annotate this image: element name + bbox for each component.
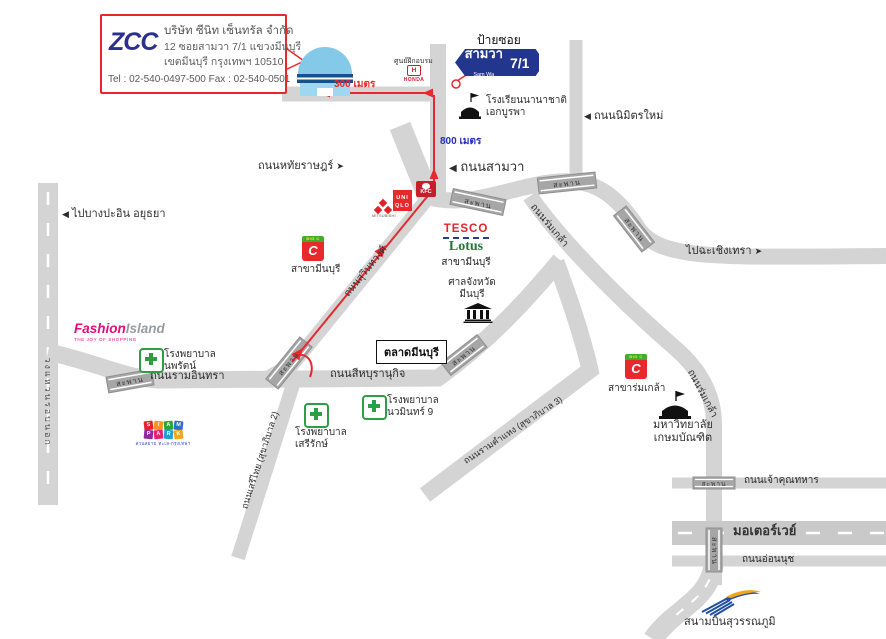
- label-motorway: มอเตอร์เวย์: [728, 524, 801, 539]
- soi-sign-caption: ป้ายซอย: [477, 34, 521, 48]
- hospital-line1: โรงพยาบาล: [295, 427, 347, 439]
- hathairat-text: ถนนหทัยราษฎร์: [258, 160, 333, 172]
- label-to-bangpain: ◀ ไปบางปะอิน อยุธยา: [62, 208, 166, 221]
- uniqlo-icon: UNI QLO: [393, 190, 412, 211]
- hospital-line1: โรงพยาบาล: [387, 395, 439, 407]
- hospital-serirak-label: โรงพยาบาล เสรีรักษ์: [295, 427, 347, 450]
- zcc-logo: ZCC: [109, 28, 157, 57]
- nimitmai-text: ถนนนิมิตรใหม่: [594, 110, 663, 122]
- arrow-left-icon: ◀: [584, 111, 591, 121]
- label-hathairat: ถนนหทัยราษฎร์ ➤: [258, 160, 344, 173]
- label-samwa-road: ◀ ถนนสามวา: [449, 160, 524, 175]
- island-text: Island: [126, 321, 165, 336]
- university-line1: มหาวิทยาลัย: [640, 419, 726, 432]
- kfc-text: KFC: [416, 189, 436, 195]
- bigc-letter: C: [625, 360, 647, 379]
- honda-logo-text: HONDA: [401, 77, 427, 83]
- hospital-line2: นวมินทร์ 9: [387, 407, 439, 419]
- lotus-logo-text: Lotus: [436, 240, 496, 254]
- company-info-box: ZCC บริษัท ซีนิท เซ็นทรัล จำกัด 12 ซอยสา…: [100, 14, 287, 94]
- route-arrowheads: [292, 89, 439, 361]
- bigc-letter: C: [302, 242, 324, 261]
- chachoengsao-text: ไปฉะเชิงเทรา: [686, 245, 752, 257]
- hospital-nopparat-label: โรงพยาบาล นพรัตน์: [164, 349, 216, 372]
- honda-h-icon: H: [407, 65, 421, 76]
- university-label: มหาวิทยาลัย เกษมบัณฑิต: [640, 419, 726, 444]
- siam-park-block: K: [173, 430, 183, 440]
- uniqlo-line2: QLO: [393, 202, 412, 210]
- hospital-cross-icon: [304, 403, 329, 428]
- label-onnut: ถนนอ่อนนุช: [742, 554, 794, 566]
- road-network: [0, 0, 886, 639]
- minburi-market-box: ตลาดมีนบุรี: [376, 340, 447, 364]
- siam-park-block: A: [153, 430, 163, 440]
- court-icon: [463, 303, 493, 323]
- school-icon: [459, 93, 481, 119]
- siam-park-block: P: [143, 430, 153, 440]
- distance-300m: 300 เมตร: [334, 79, 375, 91]
- court-line1: ศาลจังหวัด: [442, 277, 502, 289]
- school-label: โรงเรียนนานาชาติ เอกบูรพา: [486, 95, 567, 118]
- label-nimitmai: ◀ ถนนนิมิตรใหม่: [584, 110, 663, 123]
- soi-sign: สามวา Sam Wa 7/1: [455, 49, 539, 76]
- siam-park-logo: S I A M P A R K สวนสยาม ทะเล-กรุงเทพฯ: [124, 421, 202, 447]
- airport-logo-icon: [698, 586, 762, 616]
- kfc-icon: KFC: [416, 181, 436, 197]
- hospital-line2: นพรัตน์: [164, 361, 216, 373]
- road-serithai: [238, 372, 297, 558]
- hospital-navamin-label: โรงพยาบาล นวมินทร์ 9: [387, 395, 439, 418]
- hospital-line1: โรงพยาบาล: [164, 349, 216, 361]
- school-line1: โรงเรียนนานาชาติ: [486, 95, 567, 107]
- university-line2: เกษมบัณฑิต: [640, 432, 726, 445]
- bigc-romklao-branch: สาขาร่มเกล้า: [608, 383, 665, 395]
- hospital-cross-icon: [362, 395, 387, 420]
- mitsubishi-text: MITSUBISHI: [372, 214, 394, 218]
- location-marker: [452, 80, 460, 88]
- fashion-text: Fashion: [74, 321, 126, 336]
- soi-sign-number: 7/1: [510, 55, 529, 71]
- distance-800m: 800 เมตร: [440, 136, 481, 148]
- arrow-right-icon: ➤: [755, 246, 763, 256]
- tesco-lotus-landmark: TESCO Lotus สาขามีนบุรี: [436, 224, 496, 270]
- siam-park-block: R: [163, 430, 173, 440]
- road-east-curve: [428, 181, 886, 256]
- arrow-left-icon: ◀: [62, 209, 69, 219]
- honda-landmark: H HONDA: [401, 65, 427, 83]
- fashion-island-tagline: THE JOY OF SHOPPING: [74, 338, 165, 343]
- arrow-right-icon: ➤: [336, 161, 344, 171]
- hospital-line2: เสรีรักษ์: [295, 439, 347, 451]
- hospital-cross-icon: [139, 348, 164, 373]
- bigc-romklao-icon: BIG C C: [625, 354, 647, 379]
- label-chaokhunthahan: ถนนเจ้าคุณทหาร: [744, 475, 819, 487]
- court-label: ศาลจังหวัด มีนบุรี: [442, 277, 502, 300]
- bigc-minburi-icon: BIG C C: [302, 236, 324, 261]
- company-address-2: เขตมีนบุรี กรุงเทพฯ 10510: [164, 53, 283, 70]
- to-bangpain-text: ไปบางปะอิน อยุธยา: [72, 208, 166, 220]
- bigc-minburi-branch: สาขามีนบุรี: [291, 264, 340, 276]
- company-contact: Tel : 02-540-0497-500 Fax : 02-540-0501: [108, 74, 280, 85]
- uniqlo-line1: UNI: [393, 194, 412, 202]
- university-icon: [658, 391, 692, 419]
- airport-label: สนามบินสุวรรณภูมิ: [684, 616, 776, 629]
- zcc-location-map: ZCC บริษัท ซีนิท เซ็นทรัล จำกัด 12 ซอยสา…: [0, 0, 886, 639]
- tesco-branch: สาขามีนบุรี: [436, 255, 496, 270]
- tesco-logo-text: TESCO: [436, 224, 496, 236]
- label-ring-road: วงแหวนรอบนอก: [43, 337, 53, 467]
- fashion-island-logo: FashionIsland THE JOY OF SHOPPING: [74, 321, 165, 343]
- label-to-chachoengsao: ไปฉะเชิงเทรา ➤: [686, 245, 762, 258]
- siam-park-tagline: สวนสยาม ทะเล-กรุงเทพฯ: [124, 440, 202, 447]
- label-saphan-7: สะพาน: [692, 479, 736, 489]
- label-saphan-8: สะพาน: [708, 529, 720, 573]
- court-line2: มีนบุรี: [442, 289, 502, 301]
- label-sihaburanukit: ถนนสีหบุรานุกิจ: [330, 368, 405, 381]
- arrow-left-icon: ◀: [449, 163, 457, 174]
- samwa-text: ถนนสามวา: [460, 159, 524, 174]
- school-line2: เอกบูรพา: [486, 107, 567, 119]
